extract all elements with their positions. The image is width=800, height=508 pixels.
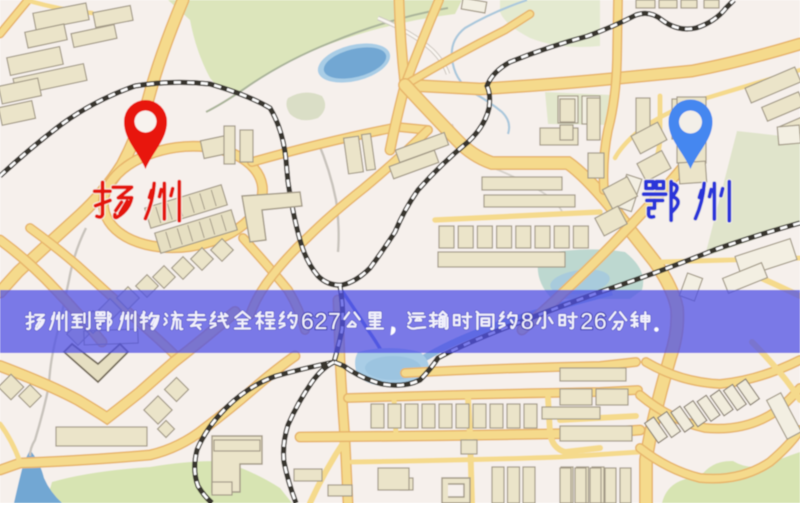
svg-text:6: 6 — [594, 308, 607, 334]
svg-text:2: 2 — [580, 308, 593, 334]
svg-text:2: 2 — [315, 308, 328, 334]
svg-text:8: 8 — [521, 308, 534, 334]
svg-text:7: 7 — [328, 308, 341, 334]
svg-text:6: 6 — [301, 308, 314, 334]
